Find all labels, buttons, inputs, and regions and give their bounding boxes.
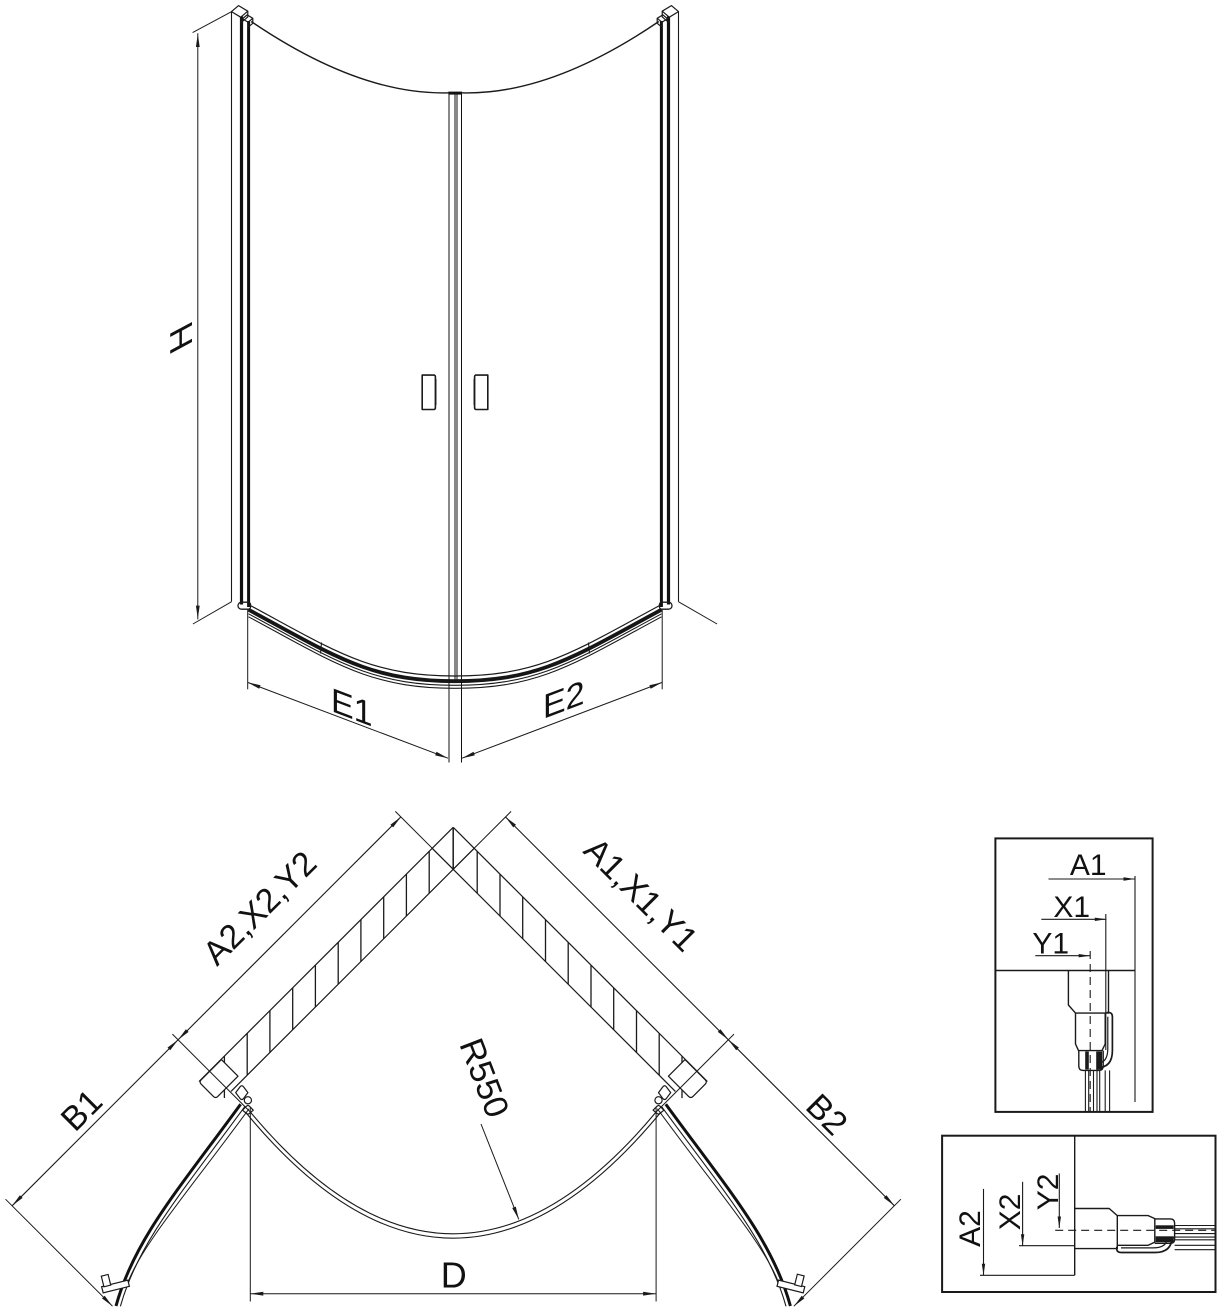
svg-text:D: D <box>441 1255 467 1296</box>
svg-text:A1: A1 <box>1070 849 1107 882</box>
svg-text:X2: X2 <box>994 1194 1027 1231</box>
svg-text:X1: X1 <box>1053 891 1090 924</box>
svg-text:Y2: Y2 <box>1032 1173 1065 1210</box>
svg-text:A2: A2 <box>954 1210 987 1247</box>
svg-text:Y1: Y1 <box>1032 928 1069 961</box>
